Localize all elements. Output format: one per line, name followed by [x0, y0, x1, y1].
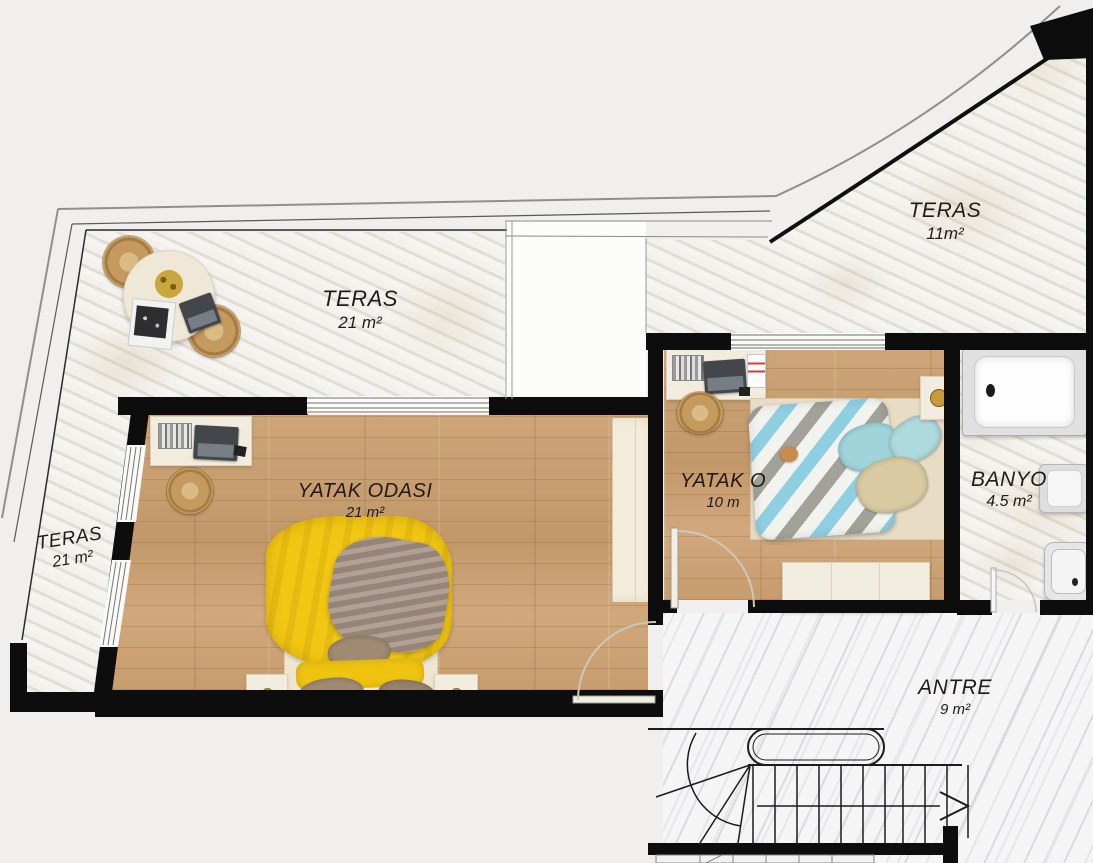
outer-boundary — [2, 6, 1093, 640]
room-label-bedroom-small: YATAK O 10 m — [662, 470, 784, 511]
door — [991, 568, 1036, 612]
room-area: 21 m² — [280, 504, 450, 521]
room-area: 4.5 m² — [948, 493, 1070, 511]
plan-linework — [0, 0, 1093, 863]
room-label-teras-top: TERAS 21 m² — [290, 286, 430, 333]
room-label-bedroom-main: YATAK ODASI 21 m² — [280, 480, 450, 521]
door — [671, 528, 754, 608]
room-name: YATAK O — [662, 470, 784, 493]
room-label-entry-hall: ANTRE 9 m² — [890, 676, 1020, 718]
room-name: YATAK ODASI — [280, 480, 450, 503]
staircase — [648, 729, 968, 843]
room-name: TERAS — [880, 199, 1010, 223]
room-area: 10 m — [662, 494, 784, 511]
room-name: TERAS — [290, 286, 430, 312]
window — [731, 333, 885, 350]
room-area: 21 m² — [290, 313, 430, 333]
room-name: BANYO — [948, 468, 1070, 492]
window — [307, 396, 489, 414]
room-label-teras-right: TERAS 11m² — [880, 199, 1010, 244]
floor-plan: TERAS 21 m² TERAS 11m² TERAS 21 m² YATAK… — [0, 0, 1093, 863]
room-area: 11m² — [880, 224, 1010, 244]
room-area: 9 m² — [890, 701, 1020, 718]
stairs-below-hint — [656, 855, 874, 863]
door — [573, 622, 656, 703]
room-label-bathroom: BANYO 4.5 m² — [948, 468, 1070, 511]
room-name: ANTRE — [890, 676, 1020, 700]
direction-arrow-icon — [940, 792, 968, 820]
